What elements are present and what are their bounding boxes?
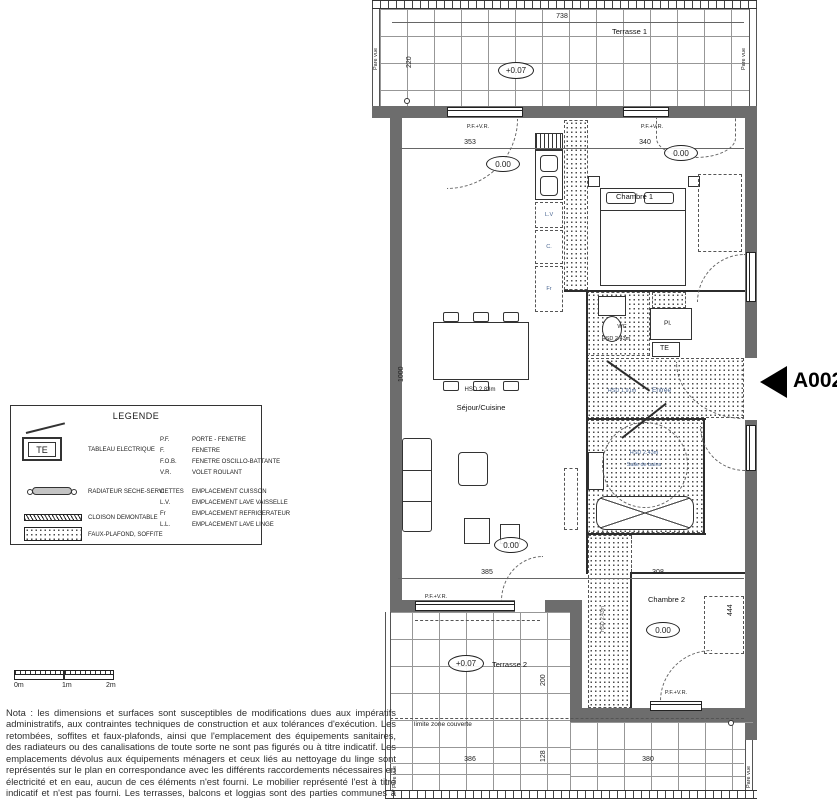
wall-top	[372, 106, 757, 118]
window-label-pfvr: P.F.+V.R.	[425, 594, 447, 600]
terrace2-dim-a: 386	[464, 756, 476, 763]
terrace2-depth-dim: 200	[540, 658, 549, 686]
entrance-door-gap	[745, 358, 757, 420]
sejour-label: Séjour/Cuisine	[457, 403, 506, 412]
terrace2-level-marker: +0.07	[448, 655, 484, 672]
scale-bar-mid-tick	[63, 670, 65, 680]
sejour-hsd: HSD 2.83m	[464, 387, 495, 393]
terrace1-label: Terrasse 1	[612, 27, 647, 36]
terrace2-tiles-bottom	[570, 722, 753, 790]
chambre1-window-dim: 340	[639, 139, 651, 146]
legend-abbr: C.	[160, 489, 166, 495]
partition-line	[632, 572, 745, 574]
legend-abbr-label: EMPLACEMENT LAVE LINGE	[192, 522, 274, 528]
legend-te-label: TE	[36, 445, 48, 455]
wc-hsd: HSD 2.43m	[602, 336, 630, 342]
legend-soffit-symbol	[24, 527, 82, 541]
terrace1-level-marker: +0.07	[498, 62, 534, 79]
legend-abbr: V.R.	[160, 470, 171, 476]
entrance-arrow-icon	[760, 366, 787, 398]
legend-abbr-label: EMPLACEMENT REFRIGERATEUR	[192, 511, 290, 517]
window-chambre2-bottom	[650, 701, 702, 711]
chair	[503, 312, 519, 322]
entree-label: Entrée	[652, 387, 671, 394]
legend-symbol-label: RADIATEUR SECHE-SERVIETTES	[88, 489, 184, 495]
window-chambre1-right	[746, 252, 756, 302]
level-marker: 0.00	[494, 537, 528, 553]
bathroom-hsd: HSD 2.43m	[630, 450, 658, 456]
wardrobe-chambre2	[704, 596, 744, 654]
parevue-label-bottom-right: Pare vue	[746, 748, 754, 788]
soffit-strip-chambre2	[588, 535, 632, 708]
legend-abbr: F.	[160, 448, 165, 454]
window-sejour-bottom	[415, 601, 515, 611]
terrace1-tiles	[380, 9, 749, 106]
chair	[443, 381, 459, 391]
door-gap-terrace2	[515, 600, 545, 612]
legend-symbol-label: CLOISON DEMONTABLE	[88, 515, 158, 521]
legend-radiator-end	[71, 489, 77, 495]
sink-bowl	[540, 155, 558, 172]
closet-pl-label: Pl.	[664, 320, 672, 327]
window-hall-right	[746, 425, 756, 471]
soffit-strip-hsd: HSD 2.43m	[600, 586, 608, 632]
sofa	[402, 438, 432, 532]
chair	[443, 312, 459, 322]
covered-zone-line	[390, 718, 744, 719]
chambre2-depth-dim: 444	[727, 586, 736, 616]
toilet-cistern	[598, 296, 626, 316]
sejour-depth-dim: 1000	[398, 348, 407, 382]
legend-te-inner: TE	[28, 442, 56, 457]
floor-plan: 738 Terrasse 1 Pare vue Pare vue 220 +0.…	[0, 0, 837, 800]
legend-abbr-label: EMPLACEMENT LAVE VAISSELLE	[192, 500, 288, 506]
legend-abbr: P.F.	[160, 437, 170, 443]
terrace2-guardrail	[385, 790, 757, 799]
sejour-bottom-window-dim: 385	[481, 569, 493, 576]
sink-bowl	[540, 176, 558, 196]
legend-abbr-label: FENETRE OSCILLO-BATTANTE	[192, 459, 280, 465]
legend-abbr-label: PORTE - FENETRE	[192, 437, 246, 443]
soffit-strip-kitchen	[564, 120, 588, 290]
chambre2-label: Chambre 2	[648, 595, 685, 604]
legend-radiator-symbol	[32, 487, 72, 495]
wall-right	[745, 106, 757, 740]
legend-abbr: Fr	[160, 511, 166, 517]
legend-symbol-label: FAUX-PLAFOND, SOFFITE	[88, 532, 163, 538]
window-sejour-top	[447, 107, 523, 117]
chambre1-label: Chambre 1	[616, 192, 653, 201]
duct-zone	[652, 292, 686, 308]
entree-hsd: HSD 1.91m	[608, 388, 636, 394]
legend-abbr-label: EMPLACEMENT CUISSON	[192, 489, 267, 495]
terrace2-dim-b: 380	[642, 756, 654, 763]
armchair	[458, 452, 488, 486]
kitchen-hob-label: C.	[546, 244, 552, 250]
chair	[473, 312, 489, 322]
legend-abbr: F.O.B.	[160, 459, 177, 465]
wardrobe-chambre1	[698, 174, 742, 252]
legend-radiator-end	[27, 489, 33, 495]
wall-chambre2-left	[570, 600, 582, 722]
partition-line	[586, 292, 588, 574]
dim-line	[390, 763, 744, 764]
level-marker: 0.00	[646, 622, 680, 638]
dim-line	[398, 578, 744, 579]
legend-title: LEGENDE	[113, 411, 160, 421]
legend-partition-symbol	[24, 514, 82, 521]
terrace1-parevue-wall-right	[749, 9, 757, 106]
terrace2-dim-c: 128	[540, 736, 549, 762]
covered-zone-line	[415, 620, 540, 621]
level-marker: 0.00	[486, 156, 520, 172]
scale-label-0m: 0m	[14, 682, 24, 689]
partition-line	[630, 572, 632, 708]
nightstand	[588, 176, 600, 187]
legend-abbr: L.L.	[160, 522, 170, 528]
scale-label-2m: 2m	[106, 682, 116, 689]
dim-line	[392, 22, 744, 23]
legend-abbr-label: VOLET ROULANT	[192, 470, 242, 476]
electrical-panel-label: TE	[660, 345, 669, 352]
kitchen-dishwasher-label: L.V	[545, 212, 553, 218]
sofa-cushion-line	[402, 501, 432, 502]
wc-label: WC	[617, 324, 626, 330]
parevue-label-top-left: Pare vue	[373, 30, 381, 70]
level-marker: 0.00	[664, 145, 698, 161]
bed-line	[600, 210, 686, 211]
terrace1-guardrail	[372, 0, 757, 9]
parevue-label-top-right: Pare vue	[741, 30, 749, 70]
unit-code-label: A002	[793, 369, 837, 393]
sejour-window-dim: 353	[464, 139, 476, 146]
window-label-pfvr: P.F.+V.R.	[665, 690, 687, 696]
terrace2-label: Terrasse 2	[492, 660, 527, 669]
tv-unit	[564, 468, 578, 530]
window-label-pfvr: P.F.+V.R.	[641, 124, 663, 130]
kitchen-fridge-label: Fr	[546, 286, 551, 292]
legend-abbr: L.V.	[160, 500, 170, 506]
drain-symbol	[404, 98, 410, 104]
terrace1-dim-width: 738	[556, 13, 568, 20]
legend-abbr-label: FENETRE	[192, 448, 220, 454]
terrace1-dim-depth: 220	[406, 38, 415, 68]
coffee-table	[464, 518, 490, 544]
window-chambre1-top	[623, 107, 669, 117]
dining-table	[433, 322, 529, 380]
covered-zone-label: limite zone couverte	[414, 721, 472, 728]
window-label-pfvr: P.F.+V.R.	[467, 124, 489, 130]
scale-label-1m: 1m	[62, 682, 72, 689]
chambre2-width-dim: 308	[652, 569, 664, 576]
partition-line	[586, 533, 706, 535]
chair	[503, 381, 519, 391]
legend-symbol-label: TABLEAU ELECTRIQUE	[88, 447, 155, 453]
nota-text: Nota : les dimensions et surfaces sont s…	[6, 707, 396, 799]
bathroom-label: Salle de bains	[627, 462, 662, 468]
drain-symbol	[728, 720, 734, 726]
sofa-cushion-line	[402, 470, 432, 471]
